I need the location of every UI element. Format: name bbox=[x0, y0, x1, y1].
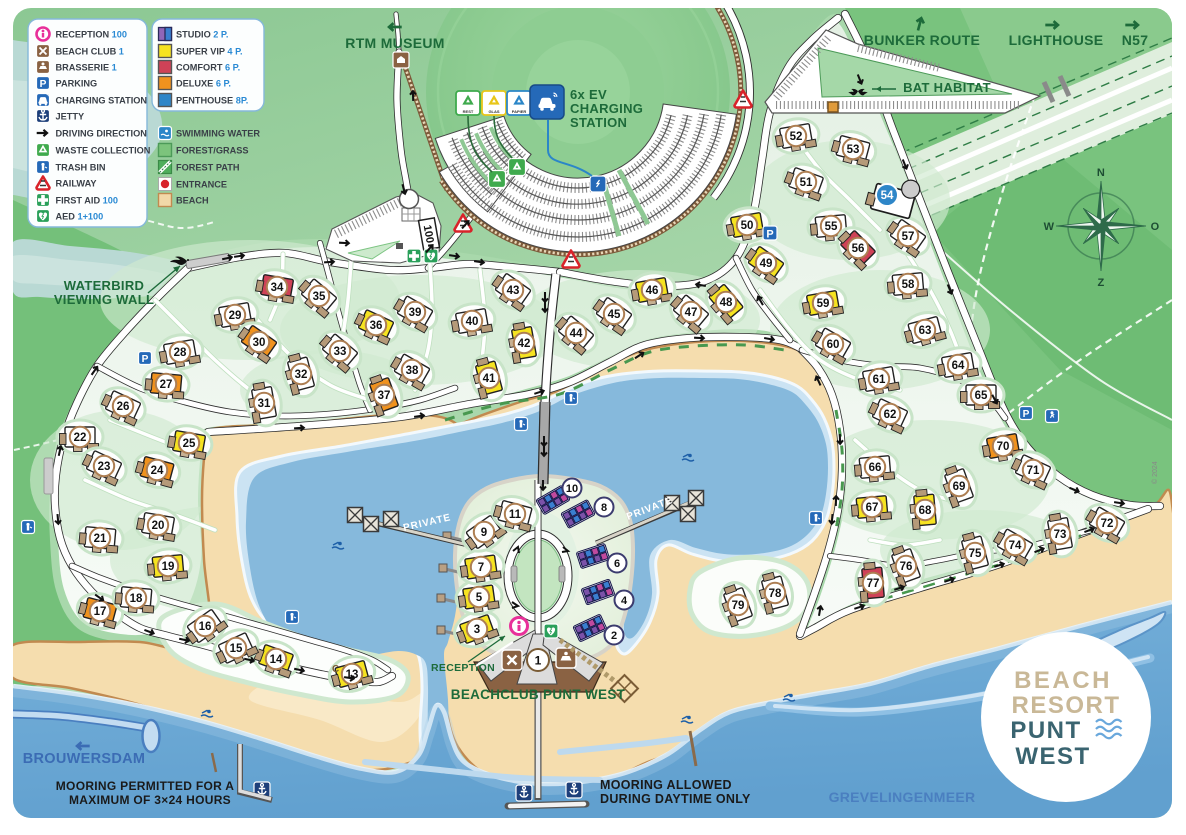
svg-text:JETTY: JETTY bbox=[56, 112, 85, 122]
svg-text:25: 25 bbox=[183, 438, 196, 450]
svg-text:79: 79 bbox=[732, 600, 745, 612]
svg-text:48: 48 bbox=[720, 297, 733, 309]
svg-text:69: 69 bbox=[953, 481, 966, 493]
svg-text:62: 62 bbox=[884, 409, 897, 421]
svg-text:TRASH BIN: TRASH BIN bbox=[56, 163, 106, 173]
svg-text:71: 71 bbox=[1027, 465, 1040, 477]
svg-text:21: 21 bbox=[94, 533, 107, 545]
svg-text:COMFORT 6 P.: COMFORT 6 P. bbox=[176, 63, 240, 73]
svg-text:DELUXE 6 P.: DELUXE 6 P. bbox=[176, 79, 231, 89]
svg-text:41: 41 bbox=[483, 373, 496, 385]
svg-text:BRASSERIE 1: BRASSERIE 1 bbox=[56, 63, 117, 73]
svg-text:RESORT: RESORT bbox=[1011, 692, 1120, 719]
svg-text:17: 17 bbox=[94, 606, 107, 618]
svg-text:MOORING PERMITTED FOR A: MOORING PERMITTED FOR A bbox=[56, 779, 234, 793]
svg-text:MOORING ALLOWED: MOORING ALLOWED bbox=[600, 778, 732, 792]
svg-text:3: 3 bbox=[474, 624, 480, 636]
svg-text:36: 36 bbox=[370, 320, 383, 332]
svg-text:54: 54 bbox=[881, 190, 894, 202]
svg-text:40: 40 bbox=[466, 316, 479, 328]
svg-text:51: 51 bbox=[800, 177, 813, 189]
svg-text:70: 70 bbox=[997, 441, 1010, 453]
svg-text:74: 74 bbox=[1009, 540, 1022, 552]
svg-text:47: 47 bbox=[685, 307, 698, 319]
svg-text:30: 30 bbox=[253, 337, 266, 349]
svg-text:FIRST AID 100: FIRST AID 100 bbox=[56, 196, 118, 206]
svg-text:P: P bbox=[40, 79, 47, 90]
svg-text:2: 2 bbox=[611, 630, 617, 642]
svg-text:DRIVING DIRECTION: DRIVING DIRECTION bbox=[56, 129, 148, 139]
svg-text:5: 5 bbox=[476, 592, 483, 604]
svg-text:32: 32 bbox=[295, 369, 308, 381]
svg-text:1: 1 bbox=[535, 654, 542, 668]
svg-text:AED 1+100: AED 1+100 bbox=[56, 212, 104, 222]
svg-text:52: 52 bbox=[790, 131, 803, 143]
svg-text:19: 19 bbox=[162, 561, 175, 573]
svg-text:28: 28 bbox=[174, 347, 187, 359]
svg-text:FOREST PATH: FOREST PATH bbox=[176, 163, 240, 173]
svg-text:MAXIMUM OF 3×24 HOURS: MAXIMUM OF 3×24 HOURS bbox=[69, 793, 231, 807]
svg-text:BEACHCLUB PUNT WEST: BEACHCLUB PUNT WEST bbox=[451, 687, 626, 702]
svg-text:46: 46 bbox=[646, 285, 659, 297]
svg-text:43: 43 bbox=[507, 285, 520, 297]
svg-text:SUPER VIP 4 P.: SUPER VIP 4 P. bbox=[176, 47, 243, 57]
svg-text:24: 24 bbox=[151, 465, 164, 477]
svg-text:60: 60 bbox=[827, 339, 840, 351]
svg-text:61: 61 bbox=[873, 374, 886, 386]
svg-text:72: 72 bbox=[1101, 518, 1114, 530]
svg-text:11: 11 bbox=[509, 509, 522, 521]
svg-text:CHARGING STATION: CHARGING STATION bbox=[56, 96, 148, 106]
svg-text:63: 63 bbox=[919, 325, 932, 337]
svg-text:26: 26 bbox=[117, 401, 130, 413]
svg-text:64: 64 bbox=[952, 360, 965, 372]
svg-text:© 2024: © 2024 bbox=[1151, 461, 1159, 484]
svg-text:WASTE COLLECTION: WASTE COLLECTION bbox=[56, 146, 151, 156]
svg-text:77: 77 bbox=[867, 578, 880, 590]
svg-text:SWIMMING WATER: SWIMMING WATER bbox=[176, 129, 260, 139]
svg-text:P: P bbox=[142, 354, 149, 365]
svg-text:BAT HABITAT: BAT HABITAT bbox=[903, 80, 991, 95]
svg-text:GLAS: GLAS bbox=[488, 109, 499, 114]
svg-text:LIGHTHOUSE: LIGHTHOUSE bbox=[1009, 32, 1104, 48]
svg-text:Z: Z bbox=[1097, 277, 1104, 289]
svg-text:6x EV: 6x EV bbox=[570, 87, 607, 102]
svg-text:49: 49 bbox=[760, 258, 773, 270]
svg-text:BEACH: BEACH bbox=[1014, 667, 1112, 694]
svg-text:73: 73 bbox=[1054, 529, 1067, 541]
svg-text:45: 45 bbox=[608, 309, 621, 321]
svg-text:RECEPTION: RECEPTION bbox=[431, 662, 495, 674]
svg-text:PUNT: PUNT bbox=[1010, 717, 1081, 744]
svg-text:DURING DAYTIME ONLY: DURING DAYTIME ONLY bbox=[600, 792, 751, 806]
svg-text:REST: REST bbox=[463, 109, 474, 114]
svg-text:RAILWAY: RAILWAY bbox=[56, 179, 97, 189]
svg-text:78: 78 bbox=[769, 588, 782, 600]
svg-text:4: 4 bbox=[621, 595, 628, 607]
svg-text:7: 7 bbox=[478, 562, 484, 574]
svg-text:50: 50 bbox=[741, 220, 754, 232]
svg-text:39: 39 bbox=[409, 307, 422, 319]
svg-text:WATERBIRD: WATERBIRD bbox=[64, 278, 144, 293]
svg-text:38: 38 bbox=[406, 365, 419, 377]
svg-text:58: 58 bbox=[902, 279, 915, 291]
svg-text:RTM MUSEUM: RTM MUSEUM bbox=[345, 35, 444, 51]
svg-text:37: 37 bbox=[378, 390, 391, 402]
svg-text:55: 55 bbox=[825, 221, 838, 233]
svg-text:P: P bbox=[766, 228, 773, 240]
svg-text:BUNKER ROUTE: BUNKER ROUTE bbox=[864, 32, 980, 48]
svg-text:N: N bbox=[1097, 167, 1105, 179]
svg-text:STUDIO 2 P.: STUDIO 2 P. bbox=[176, 30, 228, 40]
svg-text:C: C bbox=[332, 664, 339, 675]
svg-text:PENTHOUSE 8P.: PENTHOUSE 8P. bbox=[176, 96, 248, 106]
svg-text:15: 15 bbox=[230, 643, 243, 655]
svg-text:RECEPTION 100: RECEPTION 100 bbox=[56, 30, 128, 40]
svg-text:10: 10 bbox=[566, 483, 578, 495]
svg-text:56: 56 bbox=[852, 243, 865, 255]
svg-text:WEST: WEST bbox=[1015, 743, 1090, 770]
svg-text:N57: N57 bbox=[1122, 32, 1149, 48]
svg-text:W: W bbox=[1044, 221, 1055, 233]
svg-text:76: 76 bbox=[900, 561, 913, 573]
svg-text:23: 23 bbox=[98, 461, 111, 473]
svg-text:44: 44 bbox=[570, 328, 583, 340]
svg-text:75: 75 bbox=[969, 548, 982, 560]
svg-text:PAPIER: PAPIER bbox=[512, 109, 527, 114]
svg-text:PARKING: PARKING bbox=[56, 79, 98, 89]
svg-text:53: 53 bbox=[847, 144, 860, 156]
svg-text:ENTRANCE: ENTRANCE bbox=[176, 180, 227, 190]
svg-text:66: 66 bbox=[869, 462, 882, 474]
svg-text:8: 8 bbox=[601, 502, 607, 514]
svg-text:34: 34 bbox=[271, 282, 284, 294]
svg-text:CHARGING: CHARGING bbox=[570, 101, 643, 116]
svg-text:18: 18 bbox=[130, 593, 143, 605]
svg-text:31: 31 bbox=[258, 398, 271, 410]
svg-text:67: 67 bbox=[866, 502, 879, 514]
svg-text:14: 14 bbox=[270, 654, 283, 666]
svg-text:VIEWING WALL: VIEWING WALL bbox=[54, 292, 154, 307]
svg-text:9: 9 bbox=[481, 527, 487, 539]
svg-text:BEACH: BEACH bbox=[176, 196, 209, 206]
svg-text:P: P bbox=[1023, 409, 1030, 420]
svg-text:57: 57 bbox=[902, 231, 915, 243]
svg-text:27: 27 bbox=[160, 379, 173, 391]
svg-text:BEACH CLUB 1: BEACH CLUB 1 bbox=[56, 47, 124, 57]
svg-text:16: 16 bbox=[199, 621, 212, 633]
svg-text:68: 68 bbox=[919, 505, 932, 517]
svg-text:65: 65 bbox=[975, 390, 988, 402]
svg-text:6: 6 bbox=[614, 558, 620, 570]
svg-text:STATION: STATION bbox=[570, 115, 627, 130]
svg-text:20: 20 bbox=[152, 520, 165, 532]
svg-text:22: 22 bbox=[74, 432, 87, 444]
svg-text:O: O bbox=[1151, 221, 1160, 233]
svg-text:FOREST/GRASS: FOREST/GRASS bbox=[176, 146, 249, 156]
svg-text:35: 35 bbox=[313, 291, 326, 303]
svg-text:59: 59 bbox=[817, 298, 830, 310]
svg-text:BROUWERSDAM: BROUWERSDAM bbox=[23, 751, 146, 767]
svg-text:GREVELINGENMEER: GREVELINGENMEER bbox=[829, 789, 976, 805]
svg-text:29: 29 bbox=[229, 310, 242, 322]
svg-text:42: 42 bbox=[518, 338, 531, 350]
svg-text:33: 33 bbox=[334, 346, 347, 358]
